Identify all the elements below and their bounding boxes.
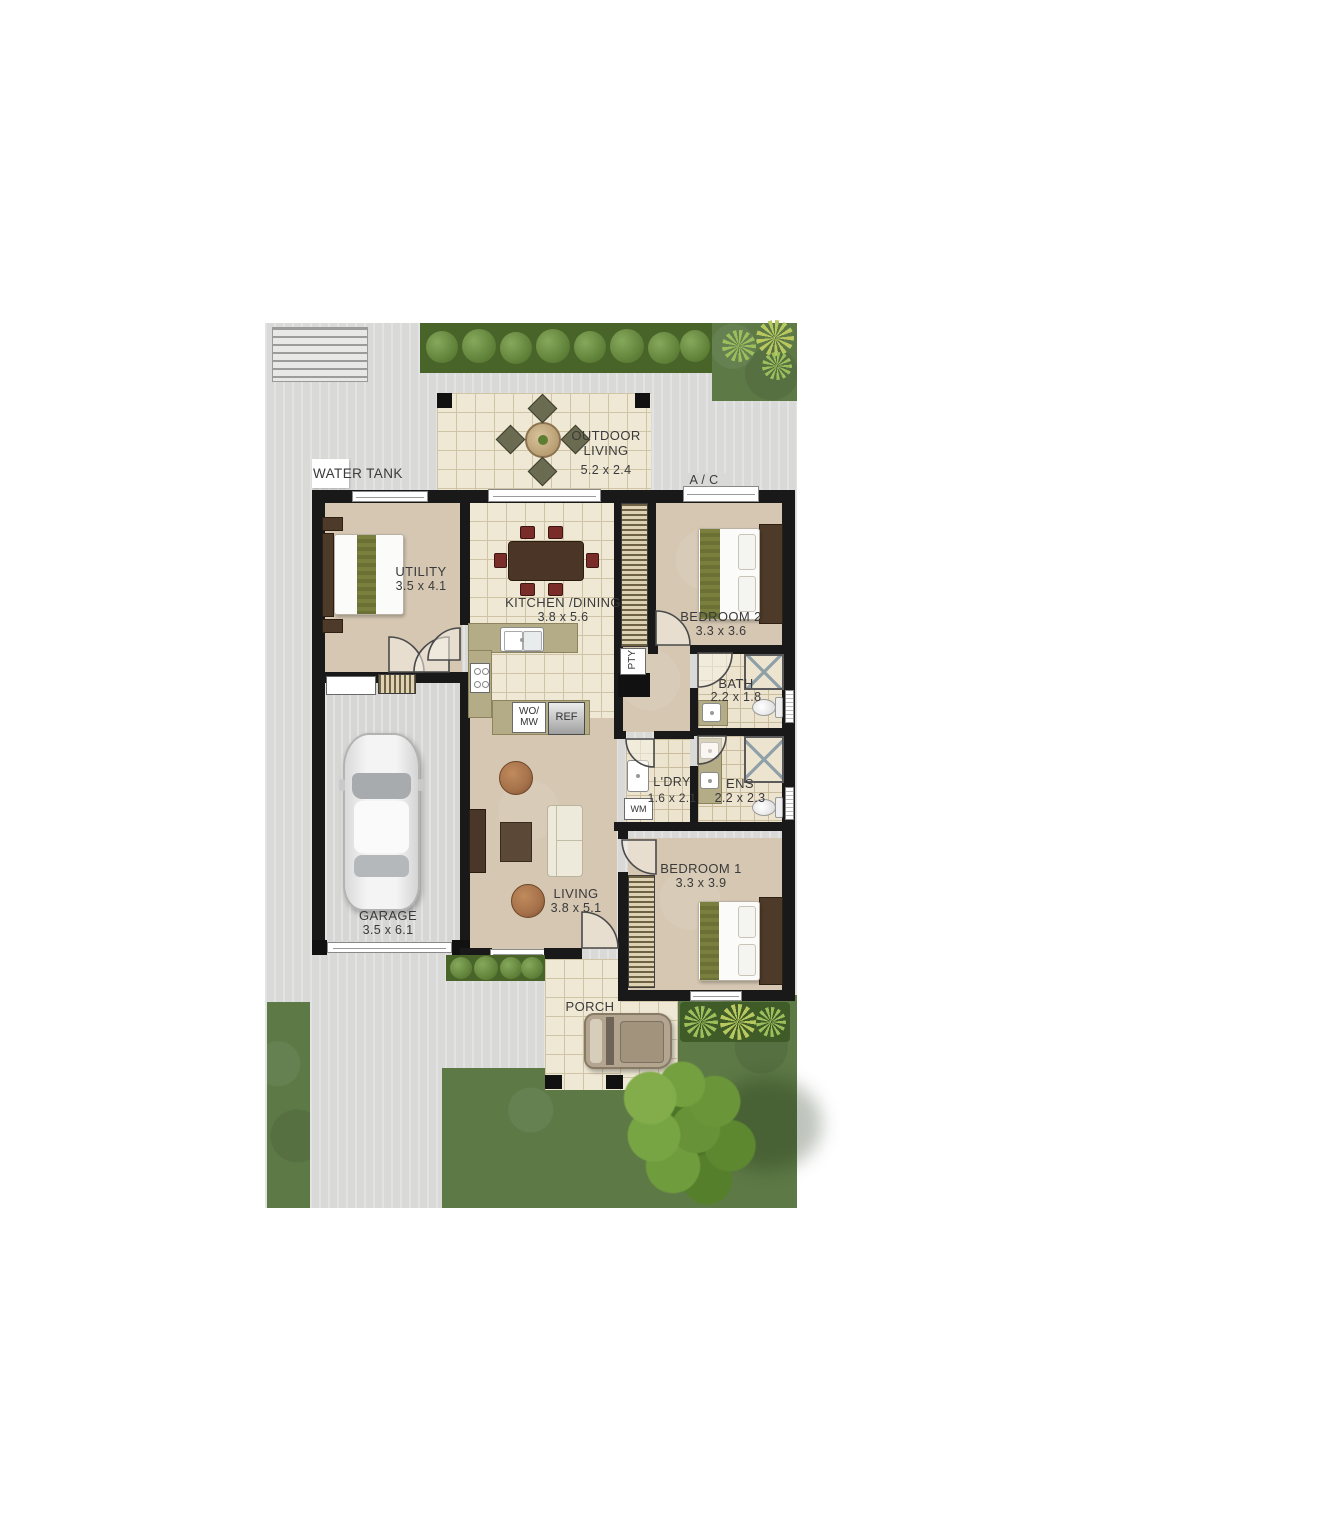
car-icon [343, 733, 420, 911]
cooktop-icon [470, 663, 490, 693]
washing-machine-label: WM [625, 804, 652, 815]
pantry-label: PTY [627, 650, 638, 669]
dining-chair-icon [494, 553, 507, 568]
garden-bed [680, 1002, 790, 1042]
round-chair-icon [499, 761, 533, 795]
bush-icon [521, 957, 543, 979]
bed-runner [700, 529, 720, 619]
wall-robe-left [614, 495, 621, 650]
living-dims: 3.8 x 5.1 [540, 901, 612, 915]
fridge-label: REF [549, 712, 584, 723]
floor-plan-canvas: OUTDOOR LIVING 5.2 x 2.4 WATER TANK A / … [0, 0, 1321, 1536]
bedroom2-label: BEDROOM 2 [678, 609, 764, 624]
wall-robe-right [648, 495, 656, 650]
hedge-under-living [446, 955, 545, 981]
ac-unit [683, 486, 759, 502]
bush-icon [426, 331, 458, 363]
garage-dims: 3.5 x 6.1 [352, 923, 424, 937]
bed-pillow [738, 576, 756, 612]
wall-bath-ens [690, 728, 795, 736]
bath-dims: 2.2 x 1.8 [701, 690, 771, 704]
wall-bedroom1-left-a [618, 830, 628, 839]
ac-label: A / C [682, 473, 726, 487]
bed-runner [357, 535, 376, 614]
bedroom1-robe [628, 875, 655, 988]
bath-sink-icon [702, 703, 721, 722]
bush-icon [574, 331, 606, 363]
bush-icon [462, 329, 496, 363]
bed-pillow [738, 944, 756, 976]
hall-robe [621, 503, 648, 647]
pergola-post [437, 393, 452, 408]
bedroom1-dims: 3.3 x 3.9 [658, 876, 744, 890]
bush-icon [680, 330, 710, 362]
bed-headboard [759, 897, 783, 985]
pantry-block [618, 673, 650, 697]
dining-chair-icon [548, 526, 563, 539]
tree-icon [597, 1047, 787, 1217]
palm-plant-icon [756, 320, 794, 356]
ensuite-window [785, 787, 794, 820]
toilet-cistern [775, 797, 783, 818]
wall-oven-microwave: WO/ MW [512, 702, 546, 733]
bush-icon [450, 957, 472, 979]
bedroom1-window [690, 991, 742, 1001]
ensuite-sink-icon [700, 742, 719, 759]
bush-icon [648, 332, 680, 364]
garage-bench [326, 676, 376, 695]
tv-unit-icon [469, 809, 486, 873]
bush-icon [500, 957, 522, 979]
wall-bath-left-a [690, 688, 698, 733]
dining-chair-icon [586, 553, 599, 568]
laundry-tub-icon [627, 760, 649, 792]
pergola-post [635, 393, 650, 408]
grass-plant-icon [756, 1007, 786, 1037]
dining-table-icon [508, 541, 584, 581]
oven-label-line1: WO/ [513, 706, 545, 717]
bath-label: BATH [701, 676, 771, 691]
toilet-cistern [775, 697, 783, 718]
garage-door-post [312, 940, 327, 955]
kitchen-dining-label: KITCHEN /DINING [505, 595, 621, 610]
palm-plant-icon [762, 352, 792, 380]
wall-bedroom2-bottom-b [690, 645, 795, 654]
pantry: PTY [620, 648, 646, 675]
sliding-door-outdoor [488, 489, 601, 502]
outdoor-table-plant [538, 435, 548, 445]
living-label: LIVING [540, 886, 612, 901]
wall-bedroom1-left-b [618, 872, 628, 1001]
utility-window [352, 491, 428, 502]
wall-utility-right [460, 490, 470, 625]
bed-headboard [322, 533, 334, 617]
utility-dims: 3.5 x 4.1 [386, 579, 456, 593]
palm-plant-icon [722, 330, 756, 362]
fridge-icon: REF [548, 702, 585, 735]
utility-label: UTILITY [386, 564, 456, 579]
utility-step-louver [378, 674, 416, 694]
grass-left-strip [267, 1002, 310, 1208]
garage-door [327, 942, 452, 953]
grass-plant-icon [684, 1006, 718, 1038]
wall-living-bottom-2 [544, 948, 582, 959]
dining-chair-icon [520, 526, 535, 539]
bedroom1-label: BEDROOM 1 [658, 861, 744, 876]
hedge-strip-top [420, 323, 712, 373]
bedroom2-dims: 3.3 x 3.6 [678, 624, 764, 638]
bush-icon [536, 329, 570, 363]
oven-label-line2: MW [513, 717, 545, 728]
outdoor-living-dims: 5.2 x 2.4 [574, 463, 638, 477]
ensuite-dims: 2.2 x 2.3 [707, 791, 773, 805]
bed-pillow [738, 906, 756, 938]
laundry-dims: 1.6 x 2.1 [642, 791, 702, 805]
grass-plant-icon [720, 1004, 756, 1040]
porch-label: PORCH [554, 999, 626, 1014]
nightstand-icon [322, 619, 343, 633]
sofa-icon [547, 805, 583, 877]
wall-laundry-top-b [654, 731, 694, 739]
bush-icon [500, 332, 532, 364]
kitchen-sink-icon [500, 627, 544, 652]
garage-label: GARAGE [352, 908, 424, 923]
steps [272, 327, 368, 382]
bed-pillow [738, 534, 756, 570]
coffee-table-icon [500, 822, 532, 862]
ensuite-label: ENS [712, 776, 768, 791]
laundry-label: L'DRY [648, 775, 696, 789]
outdoor-living-label-line1: OUTDOOR [570, 428, 642, 443]
nightstand-icon [322, 517, 343, 531]
bath-window [785, 690, 794, 723]
wall-ens-bottom [614, 822, 795, 831]
water-tank-label: WATER TANK [313, 466, 403, 481]
bush-icon [474, 956, 498, 980]
bed-runner [700, 902, 719, 980]
kitchen-dining-dims: 3.8 x 5.6 [505, 610, 621, 624]
bush-icon [610, 329, 644, 363]
porch-post [545, 1075, 562, 1089]
outdoor-living-label-line2: LIVING [570, 443, 642, 458]
